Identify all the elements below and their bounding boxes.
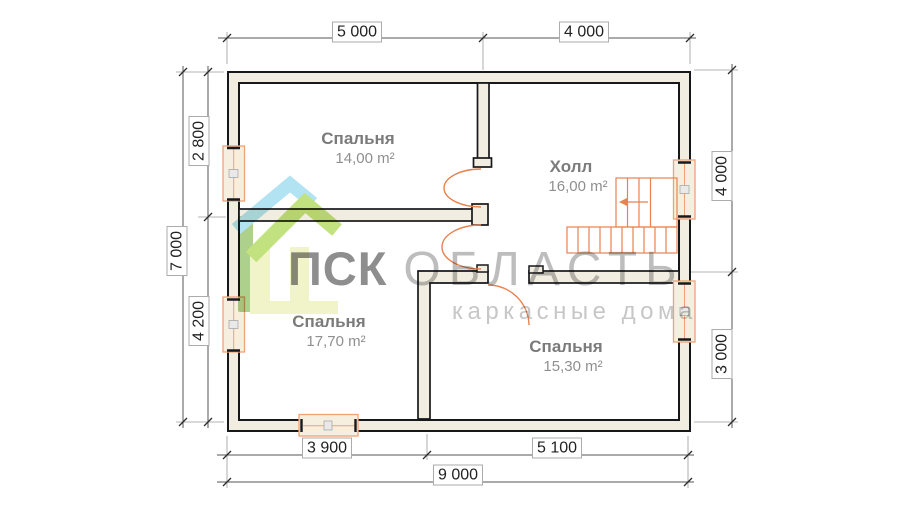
room-label-bedroom-bottom: Спальня 15,30 m² (529, 337, 602, 375)
dimension-left-lower: 4 200 (189, 296, 210, 346)
window-left-upper (223, 146, 245, 201)
room-name: Спальня (529, 337, 602, 356)
dimension-left-upper: 2 800 (189, 116, 210, 166)
watermark-tagline: каркасные дома (452, 298, 697, 326)
room-name: Спальня (321, 129, 394, 148)
watermark-brand-primary: ПСК (288, 247, 387, 291)
window-bottom (299, 415, 358, 437)
floor-plan-canvas: ПСК ОБЛАСТЬ каркасные дома Спальня 14,00… (0, 0, 900, 506)
dimension-bottom-left: 3 900 (302, 438, 352, 459)
watermark-brand-secondary: ОБЛАСТЬ (403, 248, 684, 292)
dimension-left-overall: 7 000 (167, 226, 188, 276)
dimension-top-left: 5 000 (332, 22, 382, 43)
watermark-brand: ПСК ОБЛАСТЬ (288, 247, 685, 292)
room-area: 17,70 m² (306, 333, 365, 350)
room-name: Спальня (292, 312, 365, 331)
room-label-bedroom-left: Спальня 17,70 m² (292, 312, 365, 350)
dimension-bottom-right: 5 100 (532, 438, 582, 459)
dimension-top-right: 4 000 (559, 22, 609, 43)
room-label-bedroom-top: Спальня 14,00 m² (321, 129, 394, 167)
dimension-right-upper: 4 000 (712, 151, 733, 201)
room-name: Холл (550, 157, 593, 176)
room-label-hall: Холл 16,00 m² (534, 157, 607, 195)
room-area: 15,30 m² (543, 358, 602, 375)
dimension-right-lower: 3 000 (712, 329, 733, 379)
dimension-bottom-overall: 9 000 (433, 465, 483, 486)
room-area: 14,00 m² (335, 150, 394, 167)
room-area: 16,00 m² (548, 178, 607, 195)
